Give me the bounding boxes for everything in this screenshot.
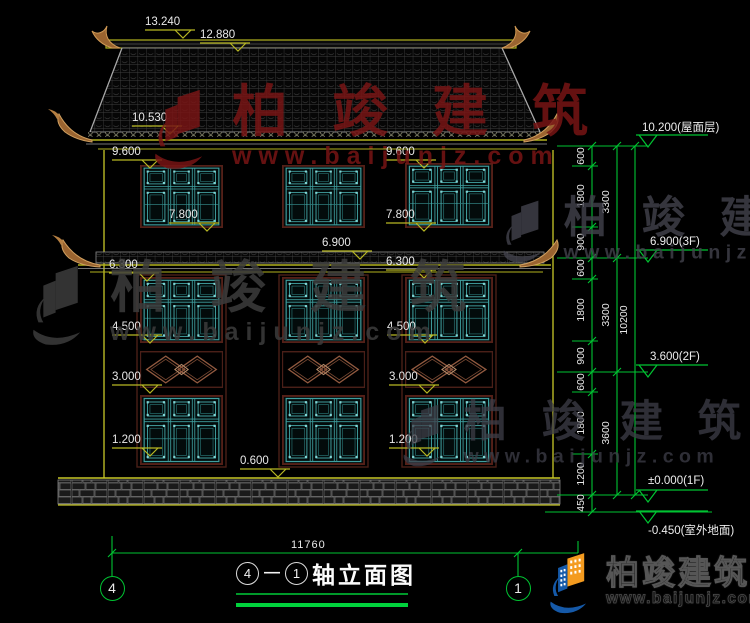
lattice-window [283, 396, 364, 464]
brand-url-text: www.baijunjz.com [606, 590, 750, 608]
lattice-window [283, 278, 364, 342]
lattice-window [406, 396, 492, 464]
title-axis-bubble-left: 4 [236, 562, 259, 585]
cad-elevation-drawing: 13.24012.88010.5309.6009.6007.8007.8006.… [0, 0, 750, 623]
brand-name-text: 柏竣建筑 [606, 556, 750, 591]
eave-ornament-upper-left [48, 109, 92, 142]
lattice-window [141, 278, 222, 342]
lattice-window [283, 166, 364, 227]
roof-lower [52, 235, 558, 272]
brand-logo-icon [545, 549, 601, 615]
lattice-window [141, 396, 222, 464]
facade [137, 164, 496, 467]
diamond-spandrel [283, 352, 365, 388]
lattice-window [406, 164, 492, 227]
lattice-window [406, 278, 492, 342]
title-text: 轴立面图 [312, 556, 416, 590]
plinth [58, 478, 560, 505]
eave-ornament-lower-left [52, 235, 100, 267]
title-axis-bubble-right: 1 [285, 562, 308, 585]
title-axis-dash: — [264, 564, 280, 582]
roof-upper [48, 26, 558, 149]
drawing-title: 4 — 1 轴立面图 [236, 556, 416, 607]
diamond-spandrel [406, 352, 493, 388]
drawing-canvas [0, 0, 750, 623]
lattice-window [141, 166, 222, 227]
diamond-spandrel [141, 352, 223, 388]
title-underline [236, 593, 408, 607]
brand-logo-block: 柏竣建筑 www.baijunjz.com [545, 549, 750, 615]
total-width-dimension: 11760 [291, 539, 326, 551]
